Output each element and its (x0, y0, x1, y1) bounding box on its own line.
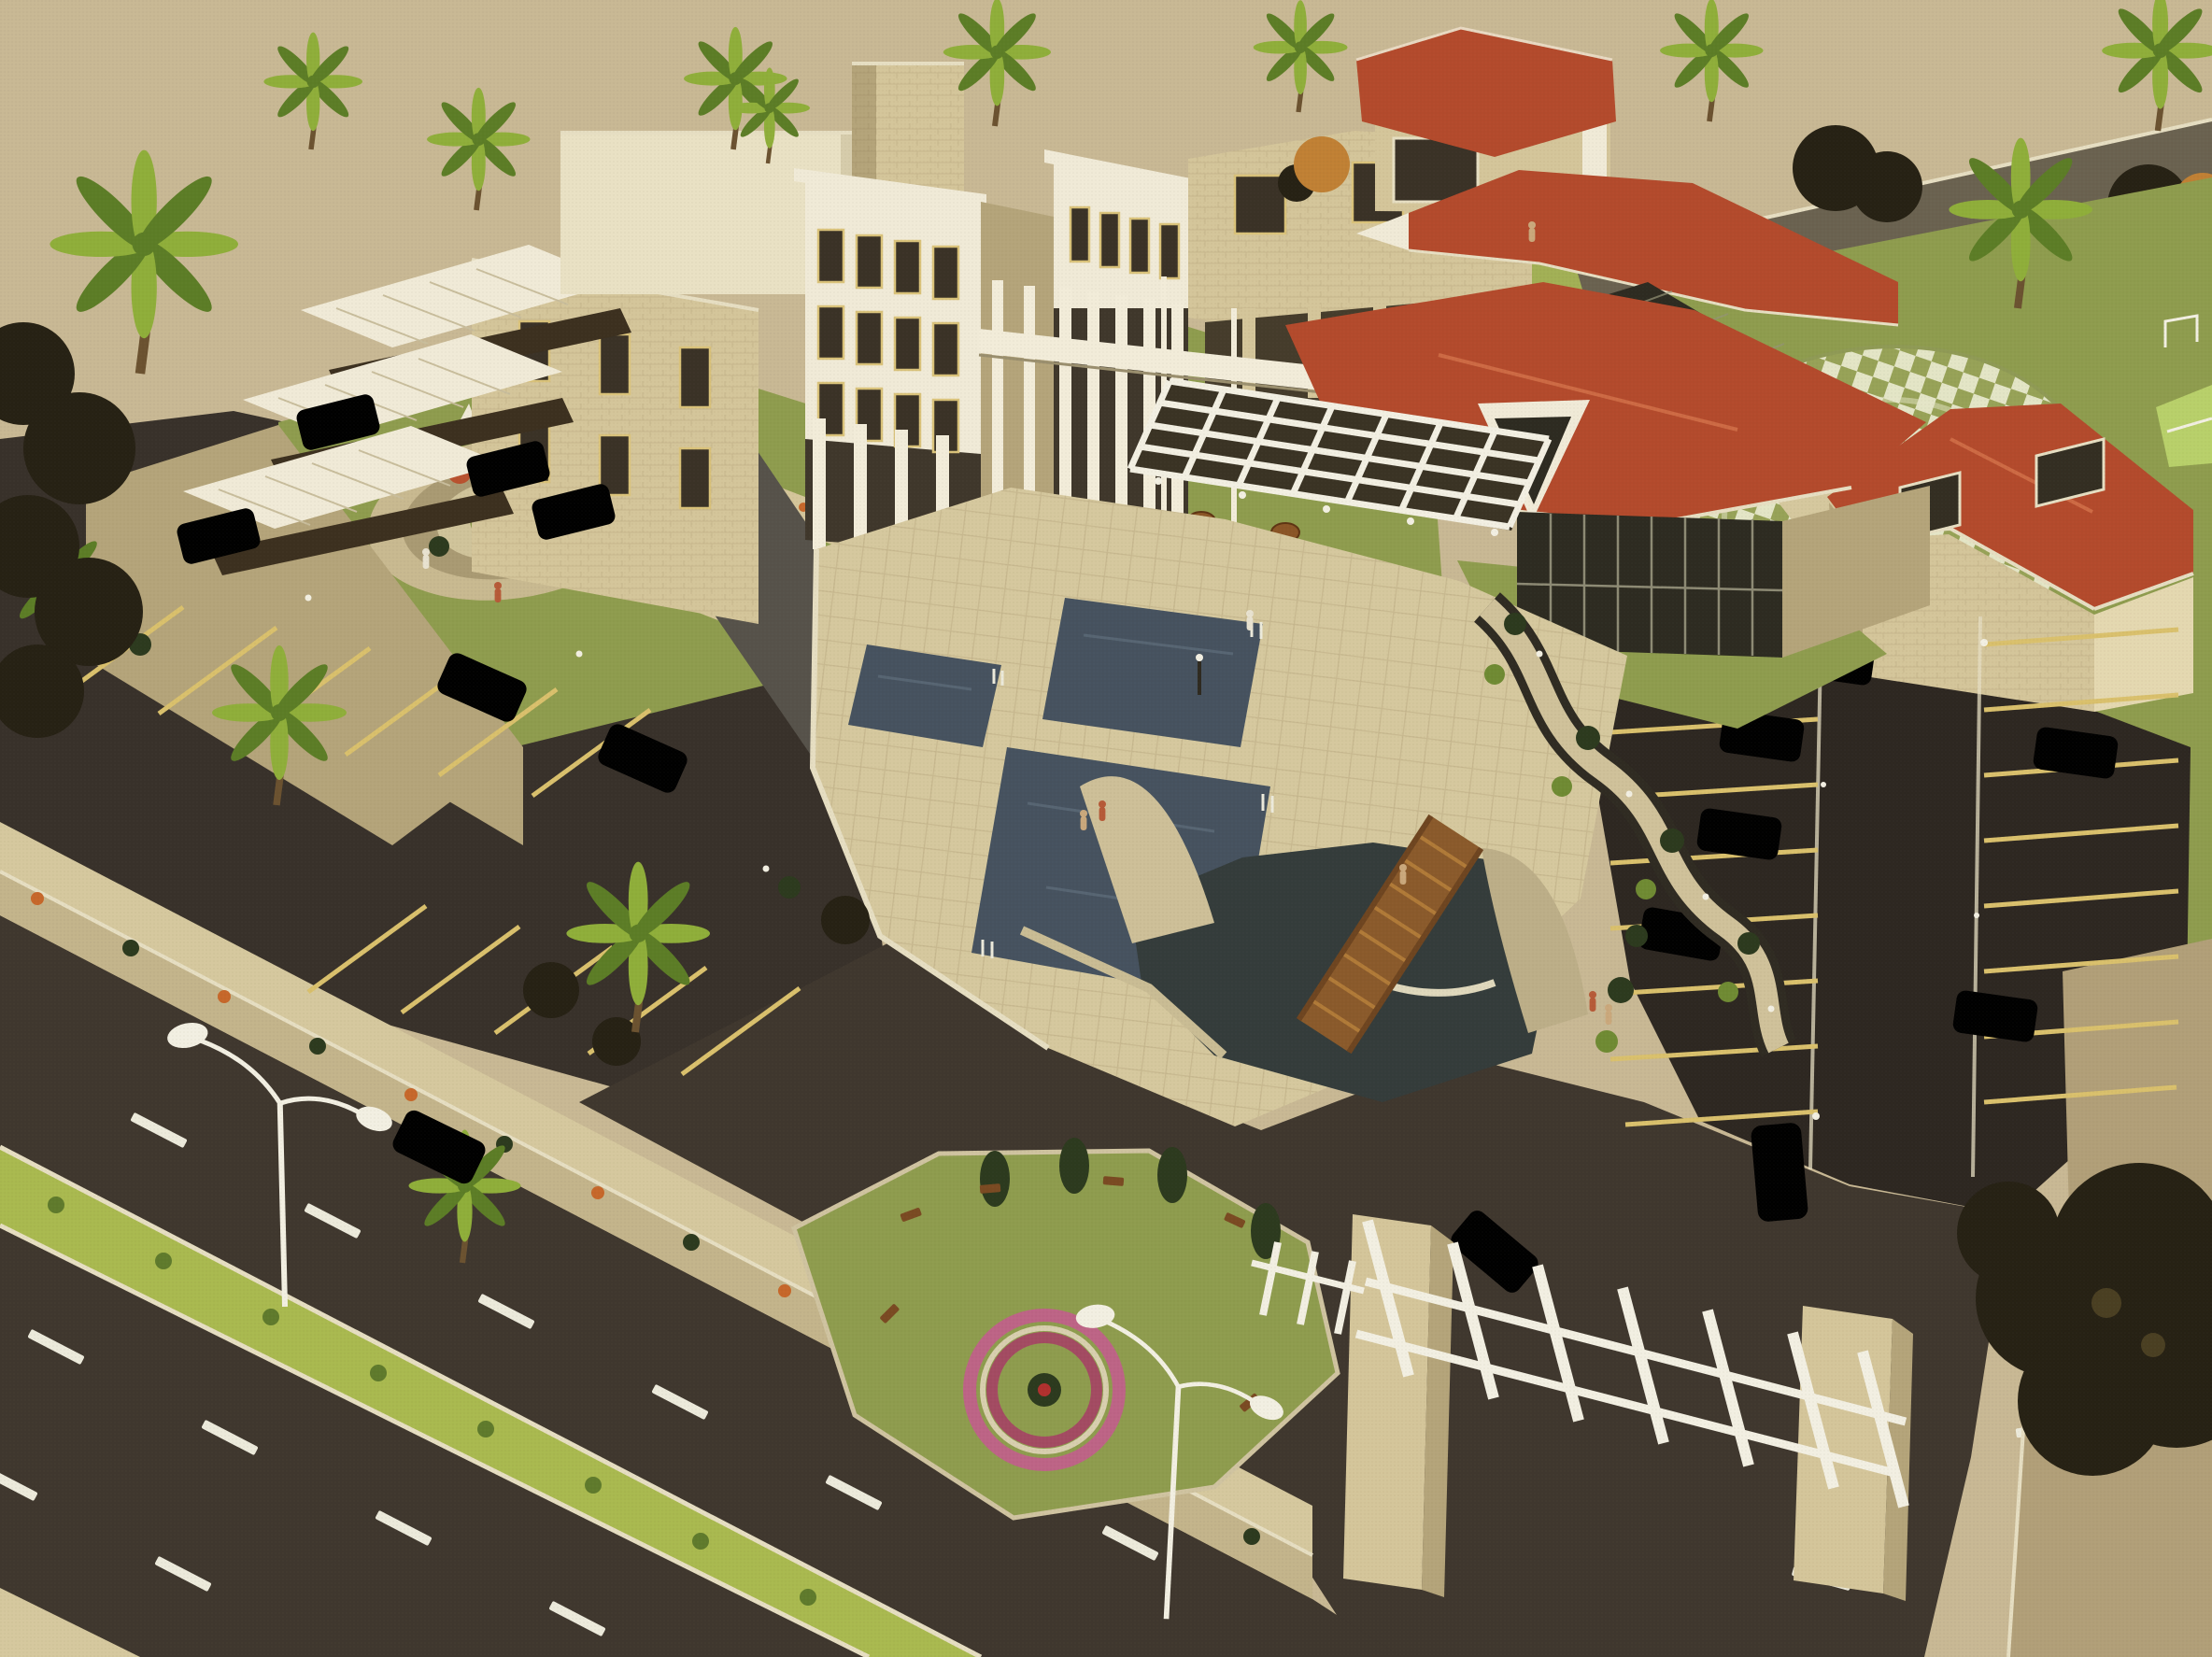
resort-rendering (0, 0, 2212, 1657)
scene-canvas (0, 0, 2212, 1657)
halftone-grain-overlay (0, 0, 2212, 1657)
